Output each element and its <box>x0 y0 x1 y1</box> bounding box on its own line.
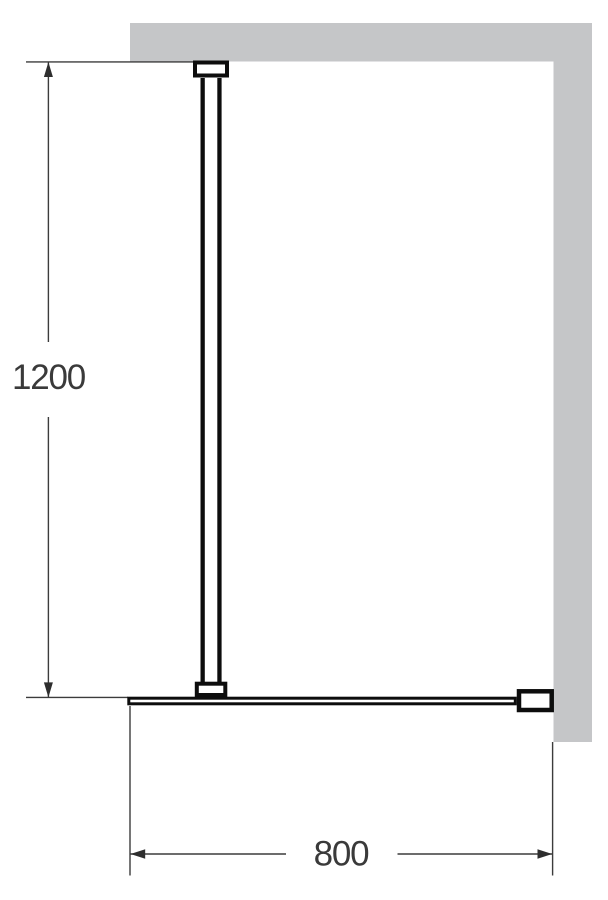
svg-text:1200: 1200 <box>12 358 86 397</box>
svg-text:800: 800 <box>314 835 370 874</box>
